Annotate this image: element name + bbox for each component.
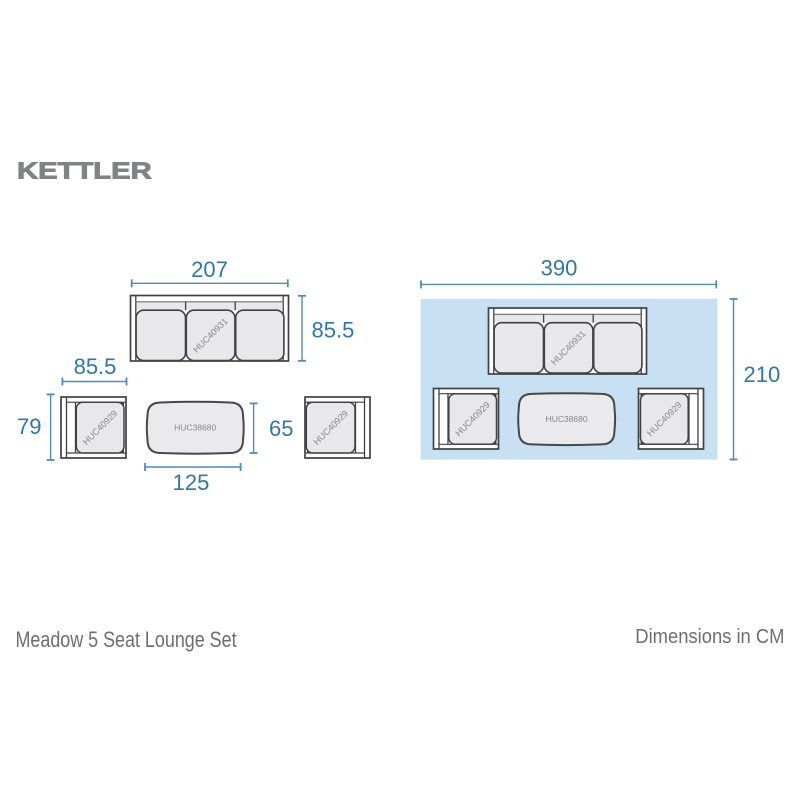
svg-text:85.5: 85.5 (74, 354, 117, 379)
svg-text:207: 207 (191, 257, 228, 282)
svg-text:85.5: 85.5 (312, 318, 355, 343)
svg-text:65: 65 (269, 416, 293, 441)
svg-text:390: 390 (541, 256, 578, 281)
svg-text:Dimensions in CM: Dimensions in CM (635, 626, 784, 648)
svg-text:HUC38680: HUC38680 (546, 414, 588, 424)
svg-text:79: 79 (17, 414, 41, 439)
svg-text:KETTLER: KETTLER (17, 157, 152, 184)
svg-text:125: 125 (173, 470, 210, 495)
svg-text:Meadow 5 Seat Lounge Set: Meadow 5 Seat Lounge Set (16, 628, 237, 652)
svg-text:HUC38680: HUC38680 (174, 423, 216, 433)
svg-text:210: 210 (744, 362, 781, 387)
